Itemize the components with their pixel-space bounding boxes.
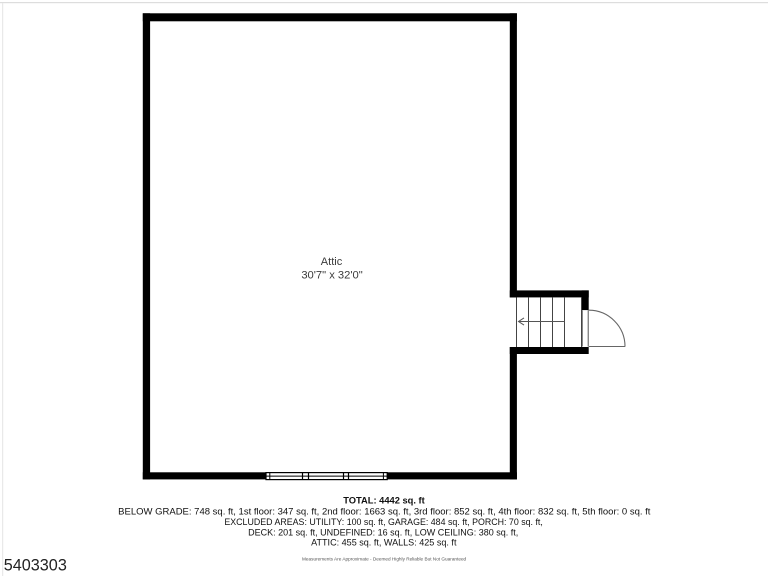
svg-text:EXCLUDED AREAS: UTILITY: 100 s: EXCLUDED AREAS: UTILITY: 100 sq. ft, GAR… xyxy=(224,517,543,527)
svg-text:BELOW GRADE: 748 sq. ft, 1st f: BELOW GRADE: 748 sq. ft, 1st floor: 347 … xyxy=(118,506,651,517)
svg-text:TOTAL: 4442 sq. ft: TOTAL: 4442 sq. ft xyxy=(343,495,425,505)
svg-text:ATTIC: 455 sq. ft, WALLS: 425: ATTIC: 455 sq. ft, WALLS: 425 sq. ft xyxy=(311,538,457,548)
svg-text:DECK: 201 sq. ft, UNDEFINED: 1: DECK: 201 sq. ft, UNDEFINED: 16 sq. ft, … xyxy=(248,527,518,537)
svg-text:Measurements Are Approximate -: Measurements Are Approximate - Deemed Hi… xyxy=(302,557,467,562)
svg-text:Attic: Attic xyxy=(321,256,343,268)
svg-text:5403303: 5403303 xyxy=(4,557,67,575)
svg-text:30'7" x 32'0": 30'7" x 32'0" xyxy=(301,269,362,281)
